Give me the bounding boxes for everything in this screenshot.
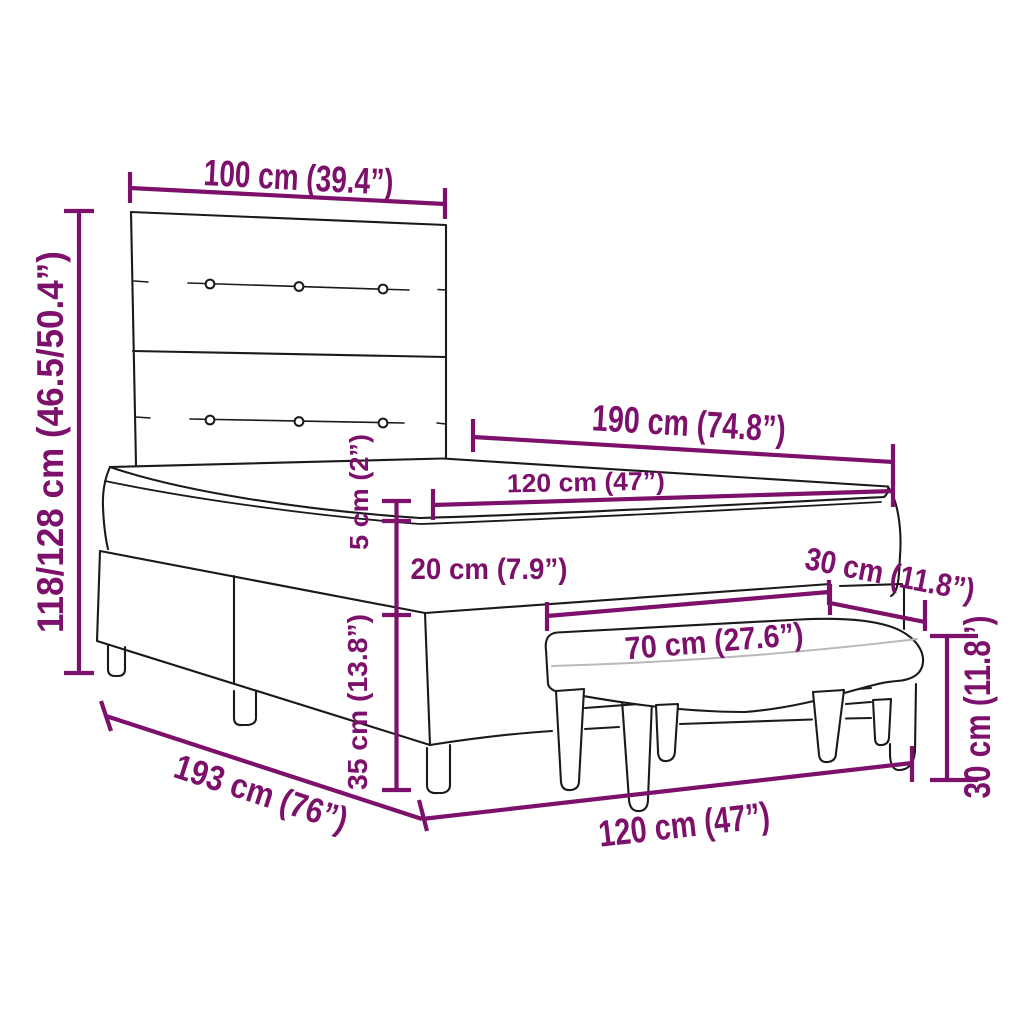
svg-text:118/128 cm (46.5/50.4”): 118/128 cm (46.5/50.4”) [30, 251, 71, 633]
svg-text:20 cm (7.9”): 20 cm (7.9”) [411, 553, 568, 586]
svg-text:5 cm (2”): 5 cm (2”) [344, 434, 374, 550]
svg-text:120 cm (47”): 120 cm (47”) [507, 466, 665, 499]
svg-text:35 cm (13.8”): 35 cm (13.8”) [342, 614, 373, 790]
svg-text:30 cm (11.8”): 30 cm (11.8”) [957, 616, 998, 799]
